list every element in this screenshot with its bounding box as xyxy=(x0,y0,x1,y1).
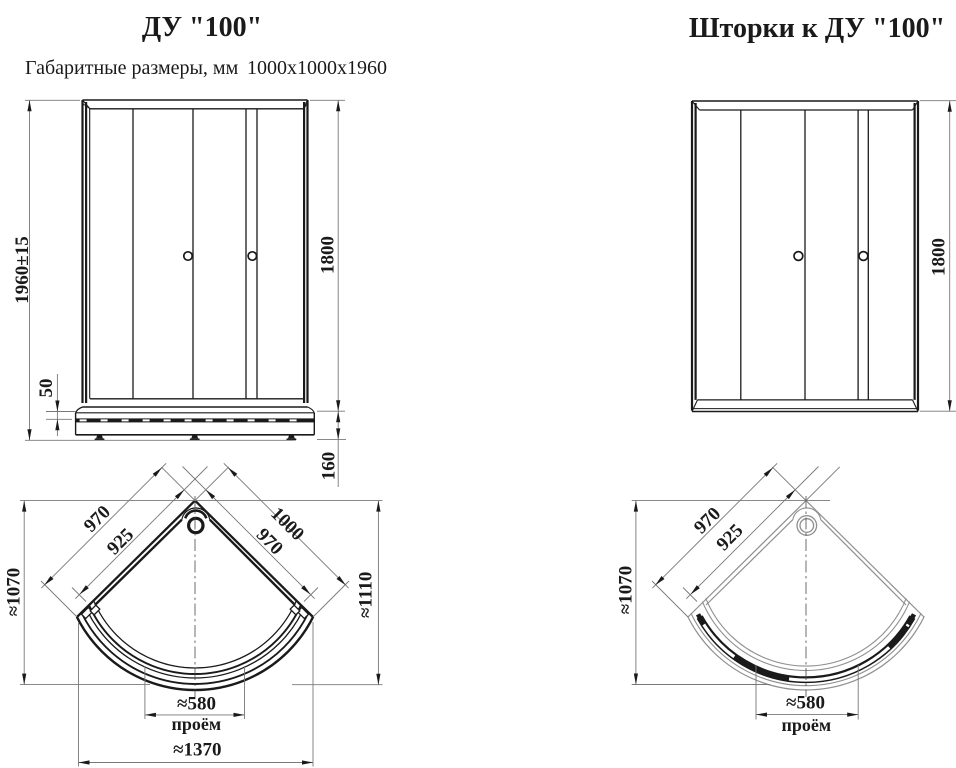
svg-text:1800: 1800 xyxy=(317,236,338,274)
svg-text:≈580: ≈580 xyxy=(177,693,216,714)
svg-text:50: 50 xyxy=(36,379,57,398)
svg-text:Шторки к ДУ "100": Шторки к ДУ "100" xyxy=(689,13,945,44)
svg-text:ДУ "100": ДУ "100" xyxy=(142,12,262,43)
svg-text:≈1070: ≈1070 xyxy=(3,568,24,616)
svg-text:1800: 1800 xyxy=(929,238,950,276)
svg-text:160: 160 xyxy=(318,452,339,481)
svg-text:≈1370: ≈1370 xyxy=(173,740,221,761)
svg-text:Габаритные размеры, мм: Габаритные размеры, мм xyxy=(25,57,239,79)
svg-text:≈1110: ≈1110 xyxy=(356,572,377,618)
svg-text:1000х1000х1960: 1000х1000х1960 xyxy=(247,57,387,79)
svg-text:проём: проём xyxy=(781,715,831,735)
svg-text:1960±15: 1960±15 xyxy=(12,236,33,303)
svg-text:проём: проём xyxy=(171,714,221,734)
svg-text:≈1070: ≈1070 xyxy=(616,566,637,614)
svg-text:≈580: ≈580 xyxy=(786,692,825,713)
